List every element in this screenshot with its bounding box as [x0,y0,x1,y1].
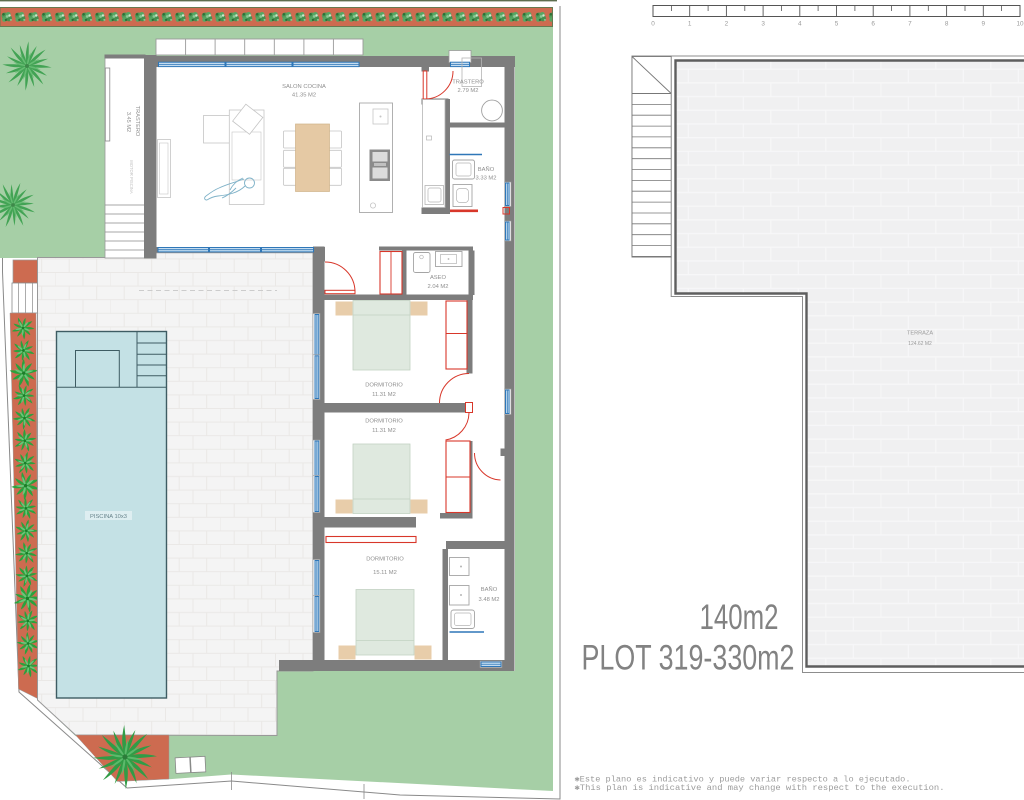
svg-text:11.31 M2: 11.31 M2 [372,428,396,434]
svg-text:10: 10 [1016,21,1024,28]
svg-text:DORMITORIO: DORMITORIO [365,383,403,389]
svg-text:BAÑO: BAÑO [481,586,498,593]
svg-text:8: 8 [945,21,949,28]
svg-text:9: 9 [982,21,986,28]
svg-text:124.62 M2: 124.62 M2 [908,341,932,347]
svg-text:✱This plan is indicative and m: ✱This plan is indicative and may change … [575,783,945,793]
svg-text:✱Este plano es indicativo y pu: ✱Este plano es indicativo y puede variar… [575,775,911,785]
svg-text:ASEO: ASEO [430,275,447,281]
svg-text:1: 1 [688,21,692,28]
svg-text:11.31 M2: 11.31 M2 [372,392,396,398]
svg-text:BAÑO: BAÑO [478,166,495,173]
svg-text:0: 0 [651,21,655,28]
svg-text:2.04 M2: 2.04 M2 [428,284,449,290]
svg-text:SALON COCINA: SALON COCINA [282,84,326,90]
svg-text:PLOT 319-330m2: PLOT 319-330m2 [582,639,795,678]
svg-text:MOTOR PISCINA: MOTOR PISCINA [129,160,134,194]
svg-text:3: 3 [761,21,765,28]
svg-text:41.35 M2: 41.35 M2 [292,93,316,99]
svg-text:2.79 M2: 2.79 M2 [458,88,479,94]
svg-text:140m2: 140m2 [700,598,779,637]
svg-text:DORMITORIO: DORMITORIO [365,419,403,425]
svg-text:TRASTERO: TRASTERO [452,80,484,86]
svg-text:3.48 M2: 3.48 M2 [479,597,500,603]
svg-text:6: 6 [871,21,875,28]
svg-text:3.45 M2: 3.45 M2 [125,112,131,132]
svg-text:3.33 M2: 3.33 M2 [476,176,497,182]
svg-text:PISCINA 10x3: PISCINA 10x3 [90,514,127,520]
svg-text:TRASTERO: TRASTERO [134,106,140,137]
svg-text:7: 7 [908,21,912,28]
svg-text:15.11 M2: 15.11 M2 [373,570,397,576]
svg-text:TERRAZA: TERRAZA [907,331,933,337]
svg-text:5: 5 [835,21,839,28]
svg-text:4: 4 [798,21,802,28]
svg-text:DORMITORIO: DORMITORIO [366,557,404,563]
svg-text:2: 2 [725,21,729,28]
